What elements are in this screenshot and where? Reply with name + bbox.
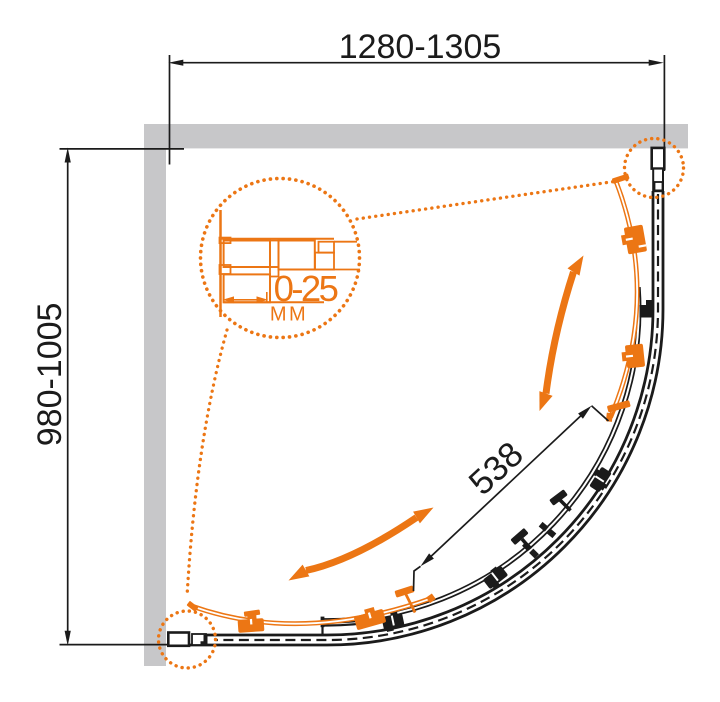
svg-text:980-1005: 980-1005 — [31, 303, 69, 447]
svg-text:1280-1305: 1280-1305 — [339, 28, 502, 66]
svg-text:MM: MM — [270, 304, 308, 326]
